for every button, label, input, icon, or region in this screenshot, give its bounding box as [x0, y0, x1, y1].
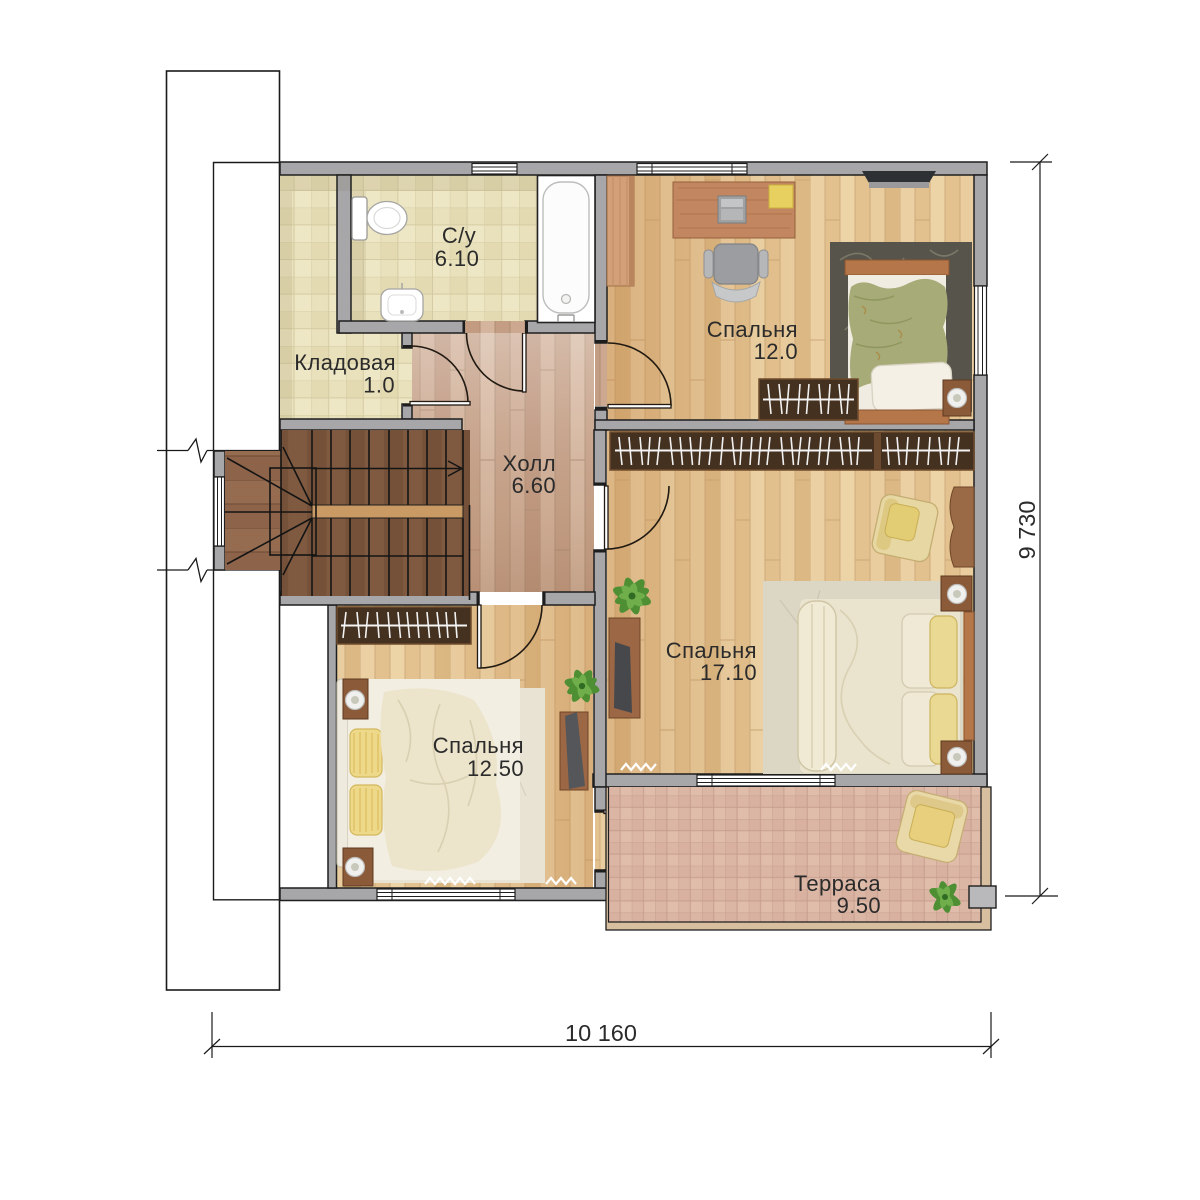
svg-text:1.0: 1.0 — [363, 373, 395, 398]
svg-text:12.50: 12.50 — [467, 756, 524, 781]
svg-text:Кладовая: Кладовая — [294, 350, 396, 375]
svg-text:10 160: 10 160 — [565, 1020, 637, 1046]
svg-text:С/у: С/у — [442, 223, 476, 248]
svg-text:6.60: 6.60 — [512, 473, 556, 498]
svg-text:Спальня: Спальня — [433, 733, 524, 758]
svg-text:9.50: 9.50 — [837, 893, 881, 918]
svg-text:17.10: 17.10 — [700, 660, 757, 685]
svg-text:12.0: 12.0 — [754, 339, 798, 364]
svg-text:9 730: 9 730 — [1014, 501, 1040, 560]
svg-text:6.10: 6.10 — [435, 246, 479, 271]
